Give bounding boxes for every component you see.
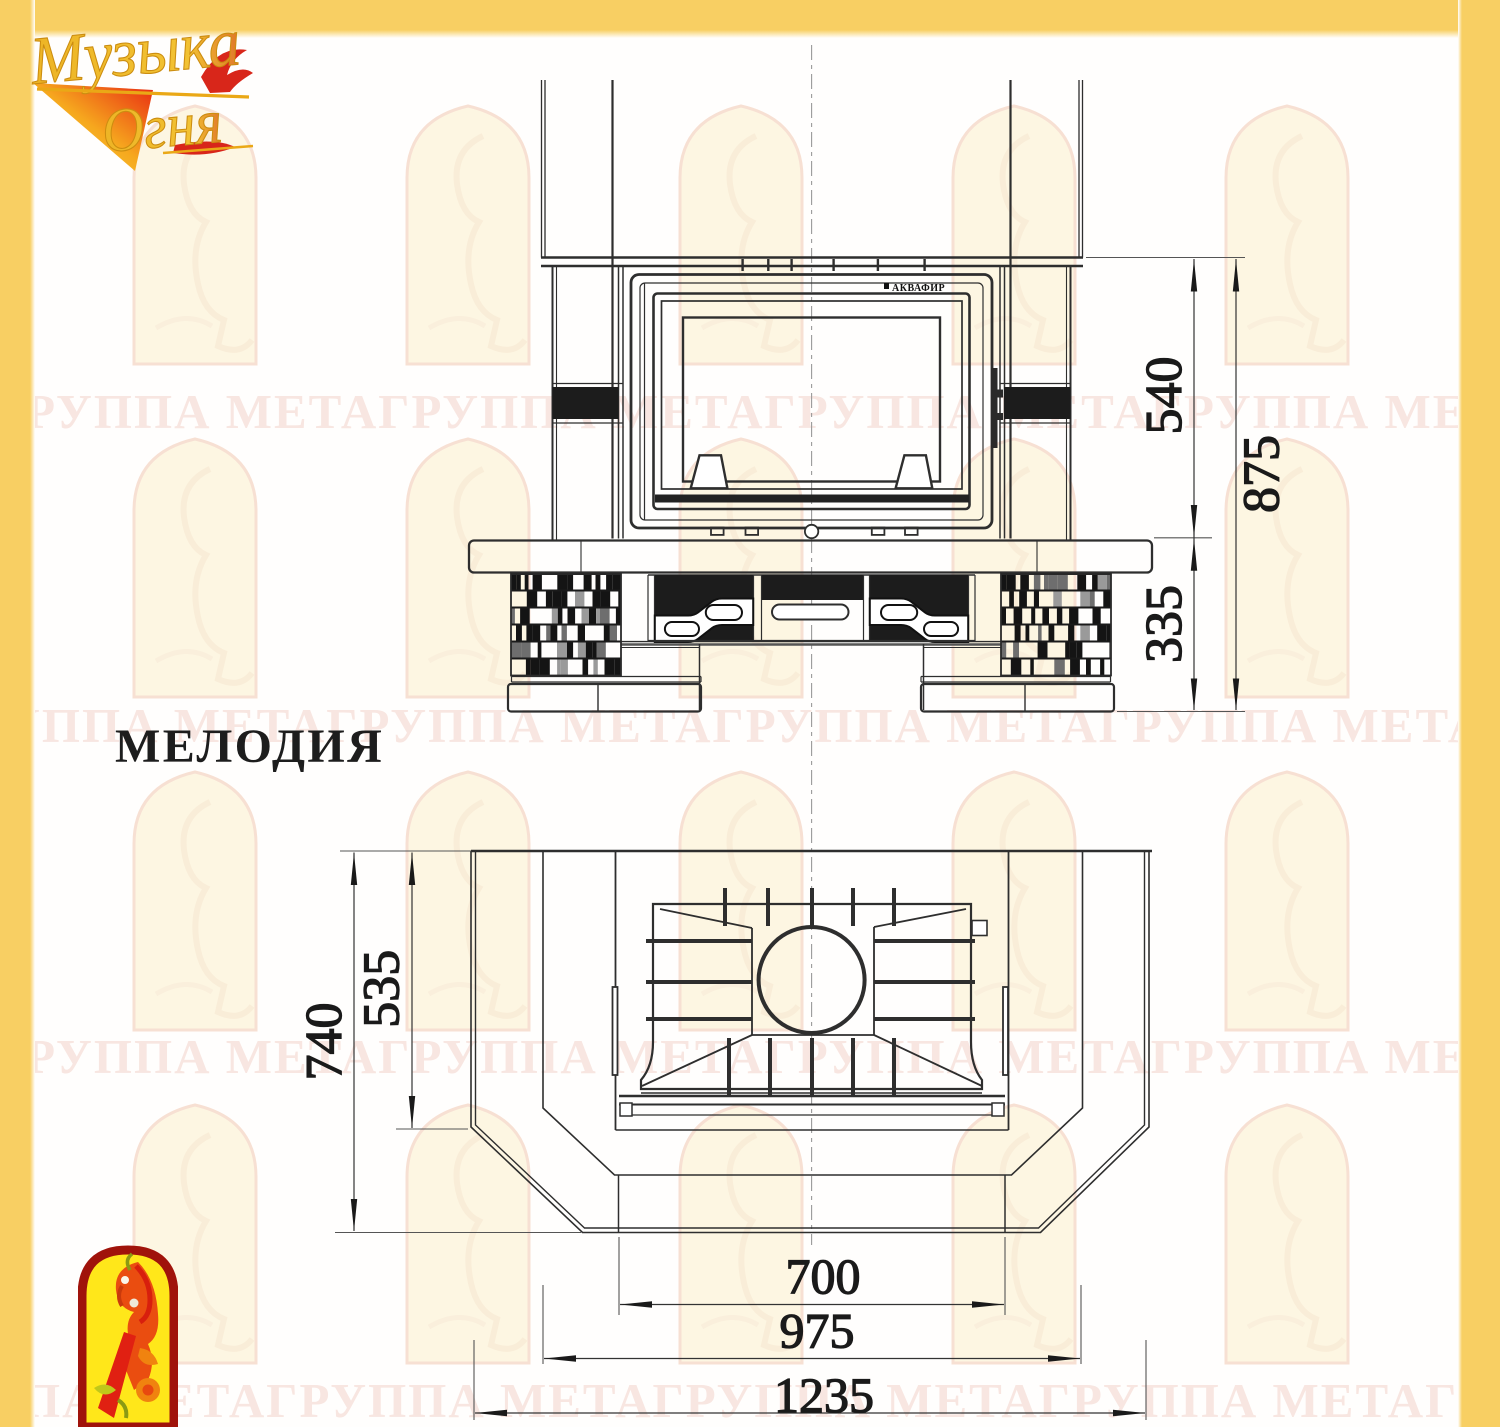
svg-text:Огня: Огня xyxy=(99,88,224,166)
svg-text:1235: 1235 xyxy=(774,1367,874,1423)
svg-text:540: 540 xyxy=(1136,357,1193,435)
svg-text:335: 335 xyxy=(1136,585,1193,663)
svg-text:535: 535 xyxy=(354,950,411,1028)
svg-text:АКВАФИР: АКВАФИР xyxy=(892,283,945,294)
svg-text:875: 875 xyxy=(1234,435,1291,513)
svg-text:700: 700 xyxy=(786,1248,861,1304)
svg-text:740: 740 xyxy=(296,1003,353,1081)
svg-text:МЕЛОДИЯ: МЕЛОДИЯ xyxy=(115,720,384,773)
svg-text:975: 975 xyxy=(780,1303,855,1359)
